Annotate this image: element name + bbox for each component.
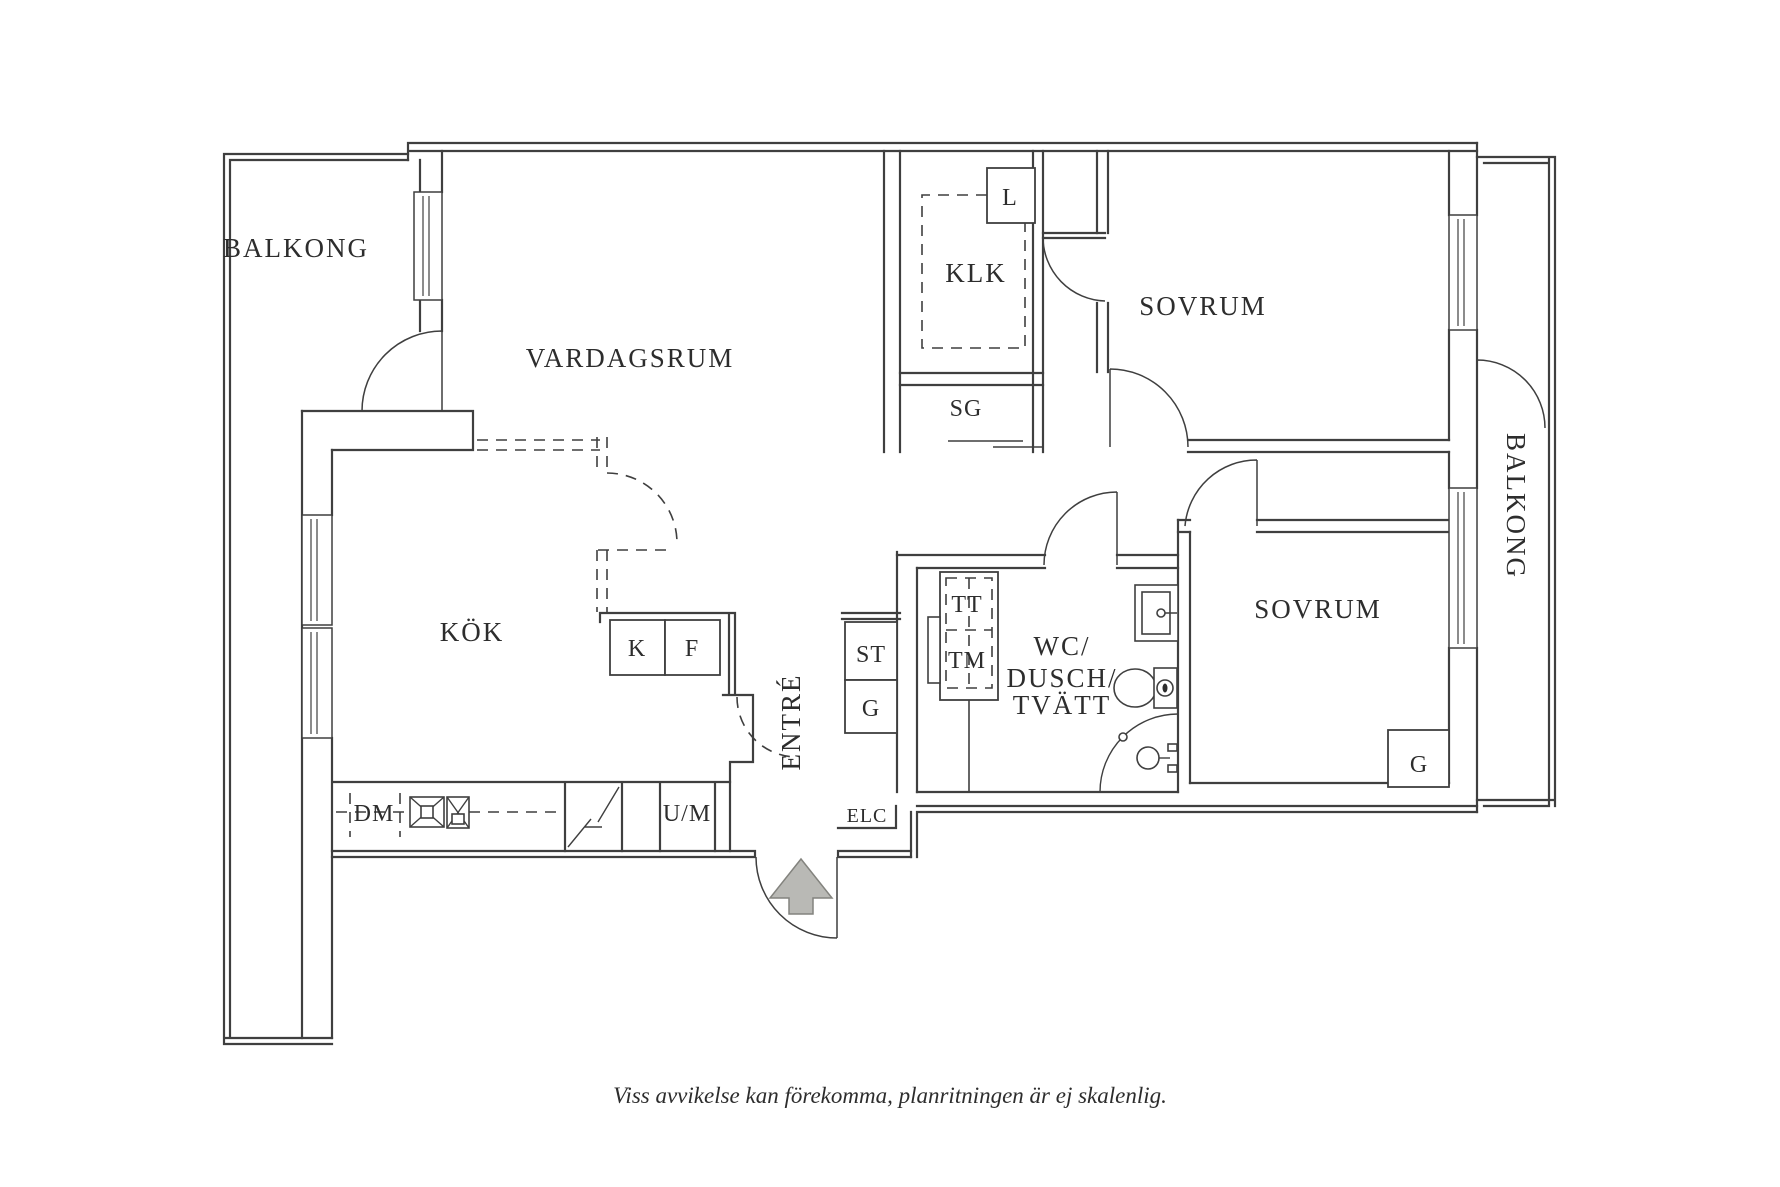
interior-walls: [334, 151, 1449, 851]
label-cleaning-closet: ST: [856, 642, 886, 668]
label-washing-machine: TM: [948, 648, 986, 674]
label-entry: ENTRÉ: [776, 674, 806, 771]
label-sliding-closet: SG: [950, 396, 983, 422]
label-linen-closet: L: [1002, 185, 1018, 211]
laundry-side-panel: [928, 617, 940, 683]
label-walk-in-closet: KLK: [945, 258, 1007, 288]
label-kitchen: KÖK: [440, 617, 505, 647]
floor-plan-page: BALKONG VARDAGSRUM KLK SOVRUM SG KÖK ENT…: [0, 0, 1780, 1187]
bedroom-top-corridor-door: [1110, 369, 1188, 447]
label-fridge: K: [628, 636, 646, 662]
toilet-icon: [1114, 668, 1177, 708]
bedroom-top-hall-door: [1043, 237, 1105, 301]
balcony-left-door: [362, 331, 442, 411]
bedroom-bottom-window: [1449, 488, 1477, 648]
living-room-window: [414, 192, 442, 300]
disclaimer-text: Viss avvikelse kan förekomma, planritnin…: [613, 1083, 1167, 1108]
label-bedroom-wardrobe: G: [1410, 752, 1428, 778]
fan-symbol-icon: [568, 787, 619, 847]
kitchen-fixtures: [410, 787, 619, 847]
kitchen-opening-swing: [607, 473, 677, 543]
bedroom-bottom-door: [1185, 460, 1257, 526]
label-balcony-right: BALKONG: [1501, 433, 1531, 579]
label-bedroom-top: SOVRUM: [1139, 291, 1267, 321]
sink-icon: [410, 797, 444, 827]
label-tumble-dryer: TT: [951, 592, 982, 618]
label-bathroom-line2: DUSCH/: [1006, 663, 1117, 693]
label-bathroom-line3: TVÄTT: [1013, 690, 1111, 720]
shower-icon: [1100, 714, 1178, 792]
floor-plan-drawing: BALKONG VARDAGSRUM KLK SOVRUM SG KÖK ENT…: [0, 0, 1780, 1187]
label-bathroom-line1: WC/: [1034, 631, 1091, 661]
balcony-right-door: [1477, 360, 1545, 428]
washbasin-icon: [1135, 585, 1178, 641]
label-oven-microwave: U/M: [663, 801, 711, 827]
bathroom-door: [1044, 492, 1117, 565]
kitchen-window-upper: [302, 515, 332, 625]
stove-icon: [447, 797, 469, 828]
label-freezer: F: [685, 636, 699, 662]
kitchen-window-lower: [302, 628, 332, 738]
entrance-arrow-icon: [770, 859, 832, 914]
label-living-room: VARDAGSRUM: [526, 343, 735, 373]
bedroom-top-window: [1449, 215, 1477, 330]
label-hall-wardrobe: G: [862, 696, 880, 722]
label-bedroom-bottom: SOVRUM: [1254, 594, 1382, 624]
label-balcony-left: BALKONG: [223, 233, 369, 263]
label-electrical-cabinet: ELC: [847, 805, 888, 827]
label-dishwasher: DM: [354, 801, 395, 827]
